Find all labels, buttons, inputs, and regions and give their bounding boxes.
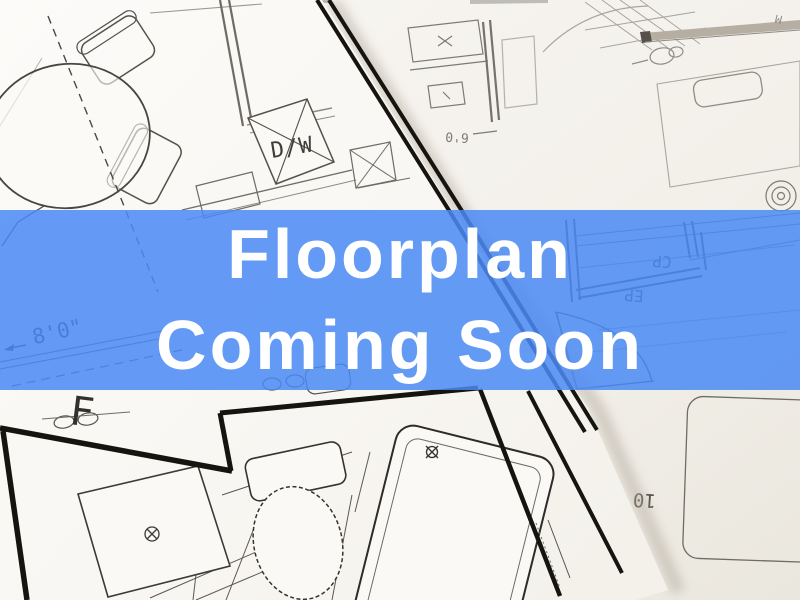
coming-soon-banner: Floorplan Coming Soon <box>0 210 800 390</box>
banner-line2: Coming Soon <box>156 300 644 391</box>
floorplan-placeholder-image: M 6'0 <box>0 0 800 600</box>
dim-6ft-label: 6'0 <box>445 128 469 144</box>
banner-line1: Floorplan <box>227 209 573 300</box>
